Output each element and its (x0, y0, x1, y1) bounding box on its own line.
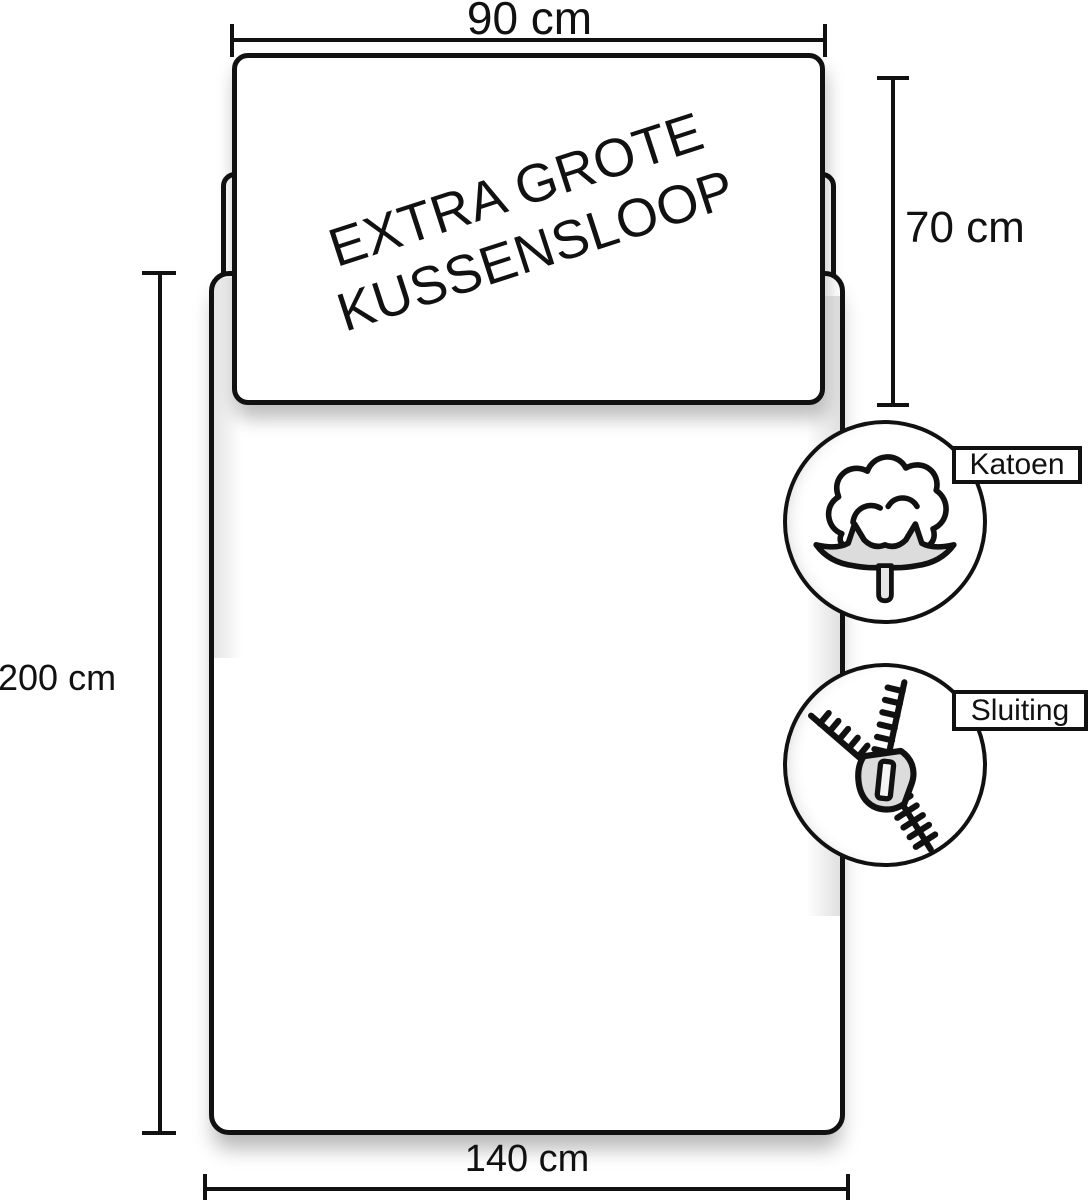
bedding-size-diagram: EXTRA GROTE KUSSENSLOOP 90 cm 70 cm 200 … (0, 0, 1088, 1200)
dimension-tick (877, 76, 909, 80)
pillow-width-label: 90 cm (232, 0, 827, 41)
dimension-line-duvet-height (158, 271, 162, 1135)
pillow-height-label: 70 cm (905, 206, 1025, 250)
pillowcase: EXTRA GROTE KUSSENSLOOP (232, 53, 825, 405)
zipper-badge-label: Sluiting (952, 690, 1088, 731)
pillow-text-block: EXTRA GROTE KUSSENSLOOP (237, 58, 820, 400)
dimension-line-pillow-height (891, 78, 895, 407)
duvet-width-label: 140 cm (209, 1140, 845, 1178)
duvet-height-label: 200 cm (0, 660, 116, 696)
dimension-tick (142, 1131, 176, 1135)
dimension-tick (142, 271, 176, 275)
cotton-icon (805, 436, 965, 608)
zipper-icon (797, 677, 973, 853)
zipper-badge-label-text: Sluiting (971, 694, 1069, 728)
cotton-badge-label: Katoen (952, 446, 1082, 484)
dimension-tick (877, 403, 909, 407)
cotton-badge-label-text: Katoen (969, 448, 1064, 482)
pillow-text-rotated: EXTRA GROTE KUSSENSLOOP (310, 97, 743, 346)
dimension-tick (846, 1174, 850, 1200)
dimension-line-duvet-width (205, 1187, 850, 1191)
dimension-tick (203, 1174, 207, 1200)
